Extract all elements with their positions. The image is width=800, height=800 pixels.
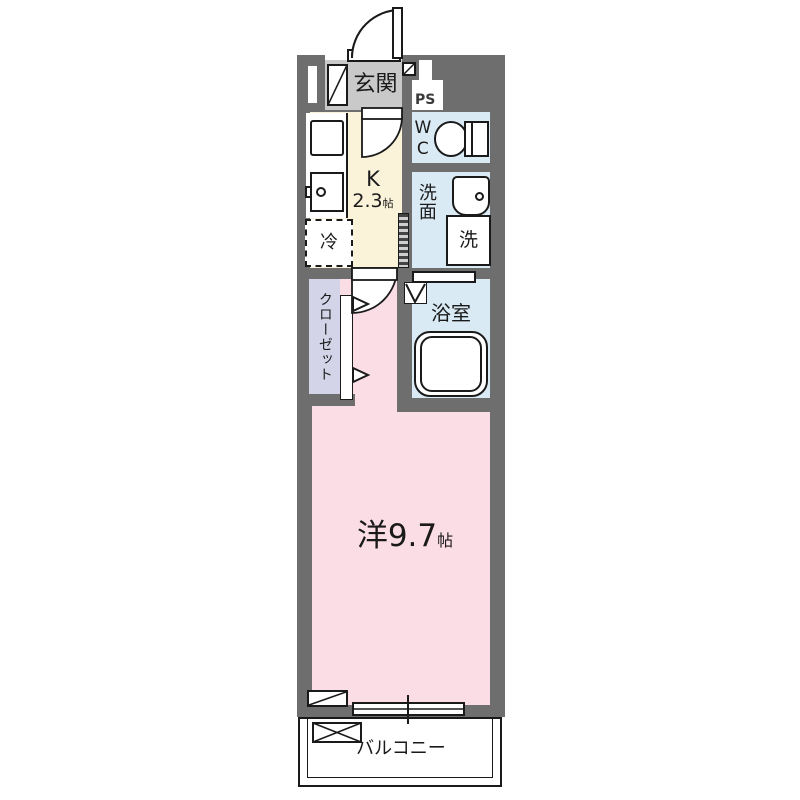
ps-shaft-box: PS bbox=[412, 80, 443, 110]
sliding-window bbox=[352, 702, 465, 716]
closet-door bbox=[340, 295, 353, 400]
wall-wc-senmen bbox=[412, 163, 492, 172]
corner-mark-icon bbox=[402, 62, 416, 76]
balcony-label: バルコニー bbox=[318, 740, 484, 759]
wc-label: WC bbox=[413, 118, 431, 160]
wall-slit-window bbox=[308, 66, 317, 103]
low-counter-icon bbox=[307, 690, 348, 707]
kitchen-sink-drain-icon bbox=[316, 187, 326, 197]
sliding-door bbox=[398, 213, 409, 268]
bathtub-inner-icon bbox=[420, 336, 482, 392]
washbasin-icon bbox=[452, 176, 490, 216]
kitchen-label-group: K 2.3帖 bbox=[340, 168, 406, 212]
wall-closet-top bbox=[297, 268, 355, 279]
genkan-label: 玄関 bbox=[353, 73, 397, 96]
bath-door-box bbox=[404, 282, 427, 304]
kitchen-size: 2.3 bbox=[352, 190, 382, 212]
stove-icon bbox=[310, 120, 344, 156]
kitchen-size-unit: 帖 bbox=[383, 197, 394, 210]
washer-label: 洗 bbox=[459, 231, 478, 251]
senmen-label: 洗面 bbox=[416, 183, 435, 221]
entrance-door bbox=[347, 49, 401, 62]
floor-plan: 玄関 クローゼット PS 冷 K 2.3帖 WC 洗面 洗 bbox=[0, 0, 800, 800]
refrigerator-box: 冷 bbox=[305, 219, 353, 267]
closet-room: クローゼット bbox=[309, 279, 340, 394]
kitchen-label: K bbox=[366, 167, 380, 191]
kitchen-faucet-icon bbox=[305, 186, 312, 198]
washbasin-drain-icon bbox=[475, 192, 484, 201]
wall-bath-bottom bbox=[397, 398, 505, 412]
main-room-label-group: 洋9.7帖 bbox=[335, 520, 475, 553]
bathroom-label: 浴室 bbox=[412, 303, 490, 324]
main-room-label: 洋9.7 bbox=[357, 518, 437, 554]
refrigerator-label: 冷 bbox=[320, 234, 338, 253]
wall-right bbox=[490, 55, 505, 717]
washing-machine-box: 洗 bbox=[446, 215, 491, 266]
ps-label: PS bbox=[415, 93, 435, 108]
closet-label: クローゼット bbox=[317, 292, 332, 382]
main-room-size-unit: 帖 bbox=[437, 531, 453, 550]
shoe-cabinet-icon bbox=[327, 64, 348, 106]
